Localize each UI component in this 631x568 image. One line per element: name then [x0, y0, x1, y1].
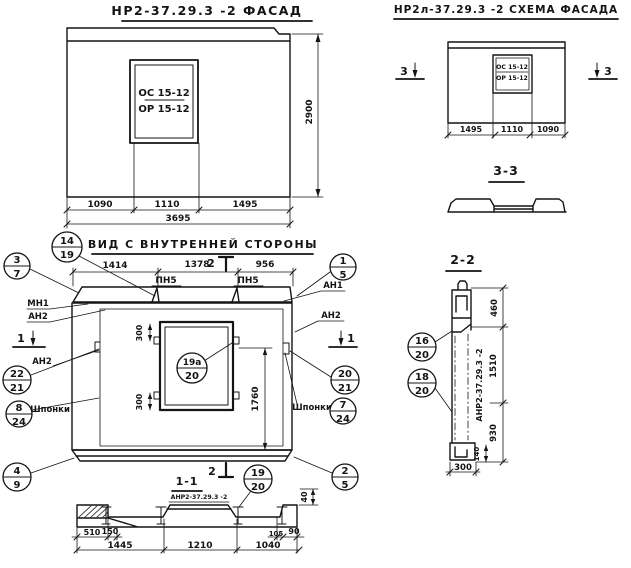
facade-dim-1090: 1090 [87, 200, 112, 210]
callout-leader-lines [30, 256, 332, 507]
label-an1-leader [284, 291, 345, 301]
dim-300-section22: 300 [454, 463, 472, 473]
arrow-up-icon [316, 34, 321, 42]
callout-bottom: 20 [415, 386, 429, 397]
arrow-up-icon [311, 489, 315, 495]
callout-16-20: 16 20 [408, 333, 436, 361]
callout-bubbles: 14 19 3 7 1 5 22 21 8 24 4 9 [3, 232, 436, 493]
label-mn1: МН1 [27, 299, 49, 309]
callout-19a-20: 19а 20 [177, 353, 207, 383]
dim-40: 40 [300, 491, 309, 503]
section-2-2-panel-mark: АНР2-37.29.3 -2 [475, 348, 484, 421]
schema-window-inner [496, 58, 529, 90]
callout-top: 20 [338, 369, 352, 380]
callout-top: 4 [14, 466, 21, 477]
technical-drawing: НР2-37.29.3 -2 ФАСАД ОС 15-12 ОР 15-12 1… [0, 0, 631, 568]
section-1-1-title: 1-1 [176, 475, 199, 488]
section-3-3: 3-3 [448, 163, 566, 212]
section-1-1-subtitle: АНР2-37.29.3 -2 [171, 494, 228, 501]
facade-window-outer [130, 60, 198, 143]
inner-section-mark-2-top-symbol [219, 257, 233, 271]
label-an1: АН1 [323, 281, 343, 291]
arrow-up-icon [148, 393, 152, 399]
dim-1445: 1445 [107, 541, 132, 551]
dim-510: 510 [84, 528, 101, 537]
callout-22-21: 22 21 [3, 366, 31, 394]
callout-14-19: 14 19 [52, 232, 82, 262]
arrow-down-icon [484, 456, 488, 462]
dim-140: 140 [473, 447, 481, 462]
callout-top: 19а [183, 358, 202, 368]
arrow-down-icon [263, 443, 267, 450]
label-shponki-right: Шпонки [292, 403, 332, 413]
arrow-up-icon [148, 324, 152, 330]
callout-top: 14 [60, 236, 74, 247]
callout-top: 18 [415, 372, 429, 383]
inner-mark-1-right: 1 [347, 332, 355, 345]
facade-opening-label-top: ОС 15-12 [138, 88, 189, 99]
callout-bottom: 20 [415, 350, 429, 361]
callout-3-7: 3 7 [4, 253, 30, 280]
callout-top: 16 [415, 336, 429, 347]
label-an2-right-leader [295, 321, 344, 332]
callout-1-5: 1 5 [330, 254, 356, 281]
callout-bottom: 7 [14, 269, 21, 280]
schema-opening-label-bottom: ОР 15-12 [496, 75, 528, 82]
callout-bottom: 9 [14, 480, 21, 491]
section-2-2: 2-2 АНР2-37.29.3 -2 460 1510 930 140 300 [435, 252, 508, 476]
schema-section-mark-left: 3 [400, 65, 408, 78]
callout-top: 19 [251, 468, 265, 479]
callout-20-21: 20 21 [331, 366, 359, 394]
callout-bottom: 19 [60, 250, 74, 261]
arrow-down-icon [31, 338, 36, 346]
dim-460: 460 [490, 299, 500, 317]
facade-extension-lines [67, 34, 323, 228]
arrow-down-icon [316, 189, 321, 197]
schema-opening-label-top: ОС 15-12 [496, 64, 528, 71]
callout-bottom: 24 [336, 414, 350, 425]
section-2-2-title: 2-2 [450, 252, 476, 267]
callout-bottom: 24 [12, 417, 26, 428]
arrow-up-icon [263, 348, 267, 355]
inner-dim-300-bottom: 300 [135, 393, 144, 410]
callout-2-5: 2 5 [332, 464, 358, 491]
inner-dim-1414: 1414 [102, 261, 127, 271]
arrow-up-icon [484, 445, 488, 451]
callout-4-9: 4 9 [3, 463, 31, 491]
inner-pn5-right: ПН5 [237, 276, 258, 286]
callout-bottom: 5 [342, 480, 349, 491]
callout-7-24: 7 24 [330, 398, 356, 425]
schema-dim-1110: 1110 [501, 125, 524, 134]
dim-150: 150 [102, 527, 119, 536]
facade-title: НР2-37.29.3 -2 ФАСАД [111, 3, 302, 18]
arrow-down-icon [148, 404, 152, 410]
facade-view: НР2-37.29.3 -2 ФАСАД ОС 15-12 ОР 15-12 1… [64, 3, 323, 228]
section-3-3-profile [448, 199, 566, 212]
callout-top: 22 [10, 369, 24, 380]
inner-dim-300-top: 300 [135, 324, 144, 341]
schema-window-outer [493, 55, 532, 93]
schema-section-mark-right: 3 [604, 65, 612, 78]
label-an2-left2: АН2 [32, 357, 52, 367]
section-1-1: 1-1 АНР2-37.29.3 -2 510 150 105 90 1445 … [72, 475, 318, 553]
callout-top: 3 [14, 255, 21, 266]
schema-dim-1495: 1495 [460, 125, 483, 134]
dim-1210: 1210 [187, 541, 212, 551]
dim-930: 930 [489, 424, 499, 442]
callout-bottom: 21 [338, 383, 352, 394]
section-2-2-hidden-lines [455, 334, 468, 440]
arrow-down-icon [413, 70, 418, 78]
callout-bottom: 5 [340, 270, 347, 281]
inner-view-title: ВИД С ВНУТРЕННЕЙ СТОРОНЫ [88, 238, 318, 251]
dim-90: 90 [288, 527, 300, 536]
inner-dim-956: 956 [256, 260, 275, 270]
schema-panel-outline [448, 42, 565, 123]
callout-8-24: 8 24 [6, 401, 32, 428]
schema-dim-1090: 1090 [537, 125, 560, 134]
callout-top: 7 [340, 400, 347, 411]
inner-section-mark-2-top: 2 [207, 257, 215, 270]
facade-dim-height: 2900 [305, 99, 315, 124]
facade-opening-label-bottom: ОР 15-12 [138, 104, 189, 115]
label-an2-right: АН2 [321, 311, 341, 321]
facade-window-inner [135, 65, 193, 138]
section-2-2-callout-leaders [435, 331, 452, 412]
section-2-2-foot [450, 443, 475, 460]
inner-dim-1378: 1378 [184, 260, 209, 270]
callout-top: 8 [16, 403, 23, 414]
section-3-3-title: 3-3 [493, 163, 519, 178]
callout-bottom: 20 [251, 482, 265, 493]
callout-bottom: 21 [10, 383, 24, 394]
facade-dim-1495: 1495 [232, 200, 257, 210]
callout-19-20: 19 20 [244, 465, 272, 493]
callout-bottom: 20 [185, 371, 199, 382]
dim-1040: 1040 [255, 541, 280, 551]
arrow-down-icon [148, 335, 152, 341]
inner-mark-1-left: 1 [17, 332, 25, 345]
label-an2-left: АН2 [28, 312, 48, 322]
arrow-down-icon [595, 70, 600, 78]
arrow-down-icon [339, 338, 344, 346]
inner-pn5-left: ПН5 [155, 276, 176, 286]
facade-dim-total: 3695 [165, 214, 190, 224]
label-shponki-right-leader [285, 353, 297, 404]
inner-top-strip [73, 287, 292, 302]
facade-dim-1110: 1110 [154, 200, 179, 210]
inner-foot-strip [72, 450, 292, 461]
schema-view: НР2л-37.29.3 -2 СХЕМА ФАСАДА ОС 15-12 ОР… [394, 4, 618, 138]
dim-1510: 1510 [489, 354, 499, 378]
arrow-down-icon [311, 499, 315, 505]
inner-section-mark-2-bottom: 2 [208, 465, 216, 478]
blueprint-canvas: НР2-37.29.3 -2 ФАСАД ОС 15-12 ОР 15-12 1… [0, 0, 631, 568]
dim-105: 105 [269, 530, 284, 538]
callout-top: 2 [342, 466, 349, 477]
inner-dim-1760: 1760 [251, 386, 261, 411]
inner-section-mark-2-bottom-symbol [219, 463, 233, 477]
callout-top: 1 [340, 256, 347, 267]
callout-18-20: 18 20 [408, 369, 436, 397]
section-1-1-hatch [79, 506, 108, 517]
schema-title: НР2л-37.29.3 -2 СХЕМА ФАСАДА [394, 4, 618, 16]
